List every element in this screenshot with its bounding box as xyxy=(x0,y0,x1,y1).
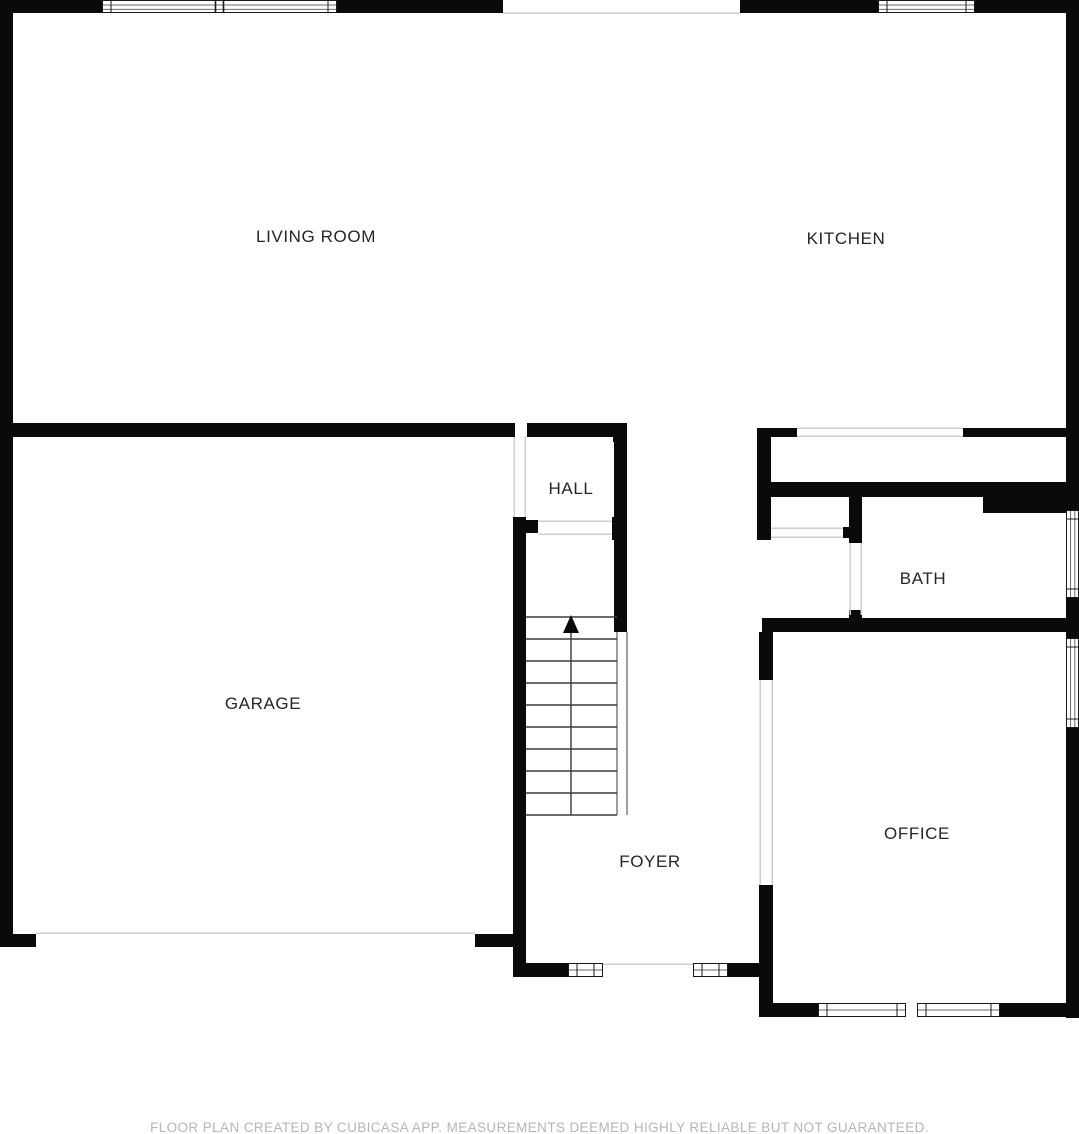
wall-segment xyxy=(764,482,1066,497)
wall-segment xyxy=(0,934,36,947)
wall-segment xyxy=(527,423,627,437)
wall-segment xyxy=(728,963,759,977)
wall-segment xyxy=(0,423,515,437)
footer-disclaimer: FLOOR PLAN CREATED BY CUBICASA APP. MEAS… xyxy=(0,1120,1079,1134)
wall-segment xyxy=(513,963,568,977)
wall-segment xyxy=(759,1003,820,1017)
wall-segment xyxy=(759,632,773,680)
wall-segment xyxy=(849,482,862,543)
room-label-garage: GARAGE xyxy=(225,694,301,713)
floor-plan-drawing: LIVING ROOMKITCHENHALLGARAGEBATHOFFICEFO… xyxy=(0,0,1079,1134)
room-label-bath: BATH xyxy=(900,569,946,588)
floor-plan-canvas: LIVING ROOMKITCHENHALLGARAGEBATHOFFICEFO… xyxy=(0,0,1079,1134)
wall-segment xyxy=(1000,1003,1079,1017)
wall-segment xyxy=(759,885,773,1017)
window xyxy=(879,1,975,13)
window xyxy=(103,1,337,13)
wall-segment xyxy=(526,520,538,533)
room-label-living-room: LIVING ROOM xyxy=(256,227,376,246)
room-label-foyer: FOYER xyxy=(619,852,681,871)
window xyxy=(1067,511,1079,598)
room-label-office: OFFICE xyxy=(884,824,950,843)
wall-segment xyxy=(475,934,513,947)
wall-segment xyxy=(612,517,627,540)
wall-segment xyxy=(983,497,1066,513)
room-label-kitchen: KITCHEN xyxy=(807,229,886,248)
wall-segment xyxy=(762,618,1066,632)
wall-segment xyxy=(513,517,526,977)
wall-segment xyxy=(963,428,1079,437)
window xyxy=(1067,639,1079,728)
wall-segment xyxy=(0,13,13,947)
room-label-hall: HALL xyxy=(549,479,594,498)
